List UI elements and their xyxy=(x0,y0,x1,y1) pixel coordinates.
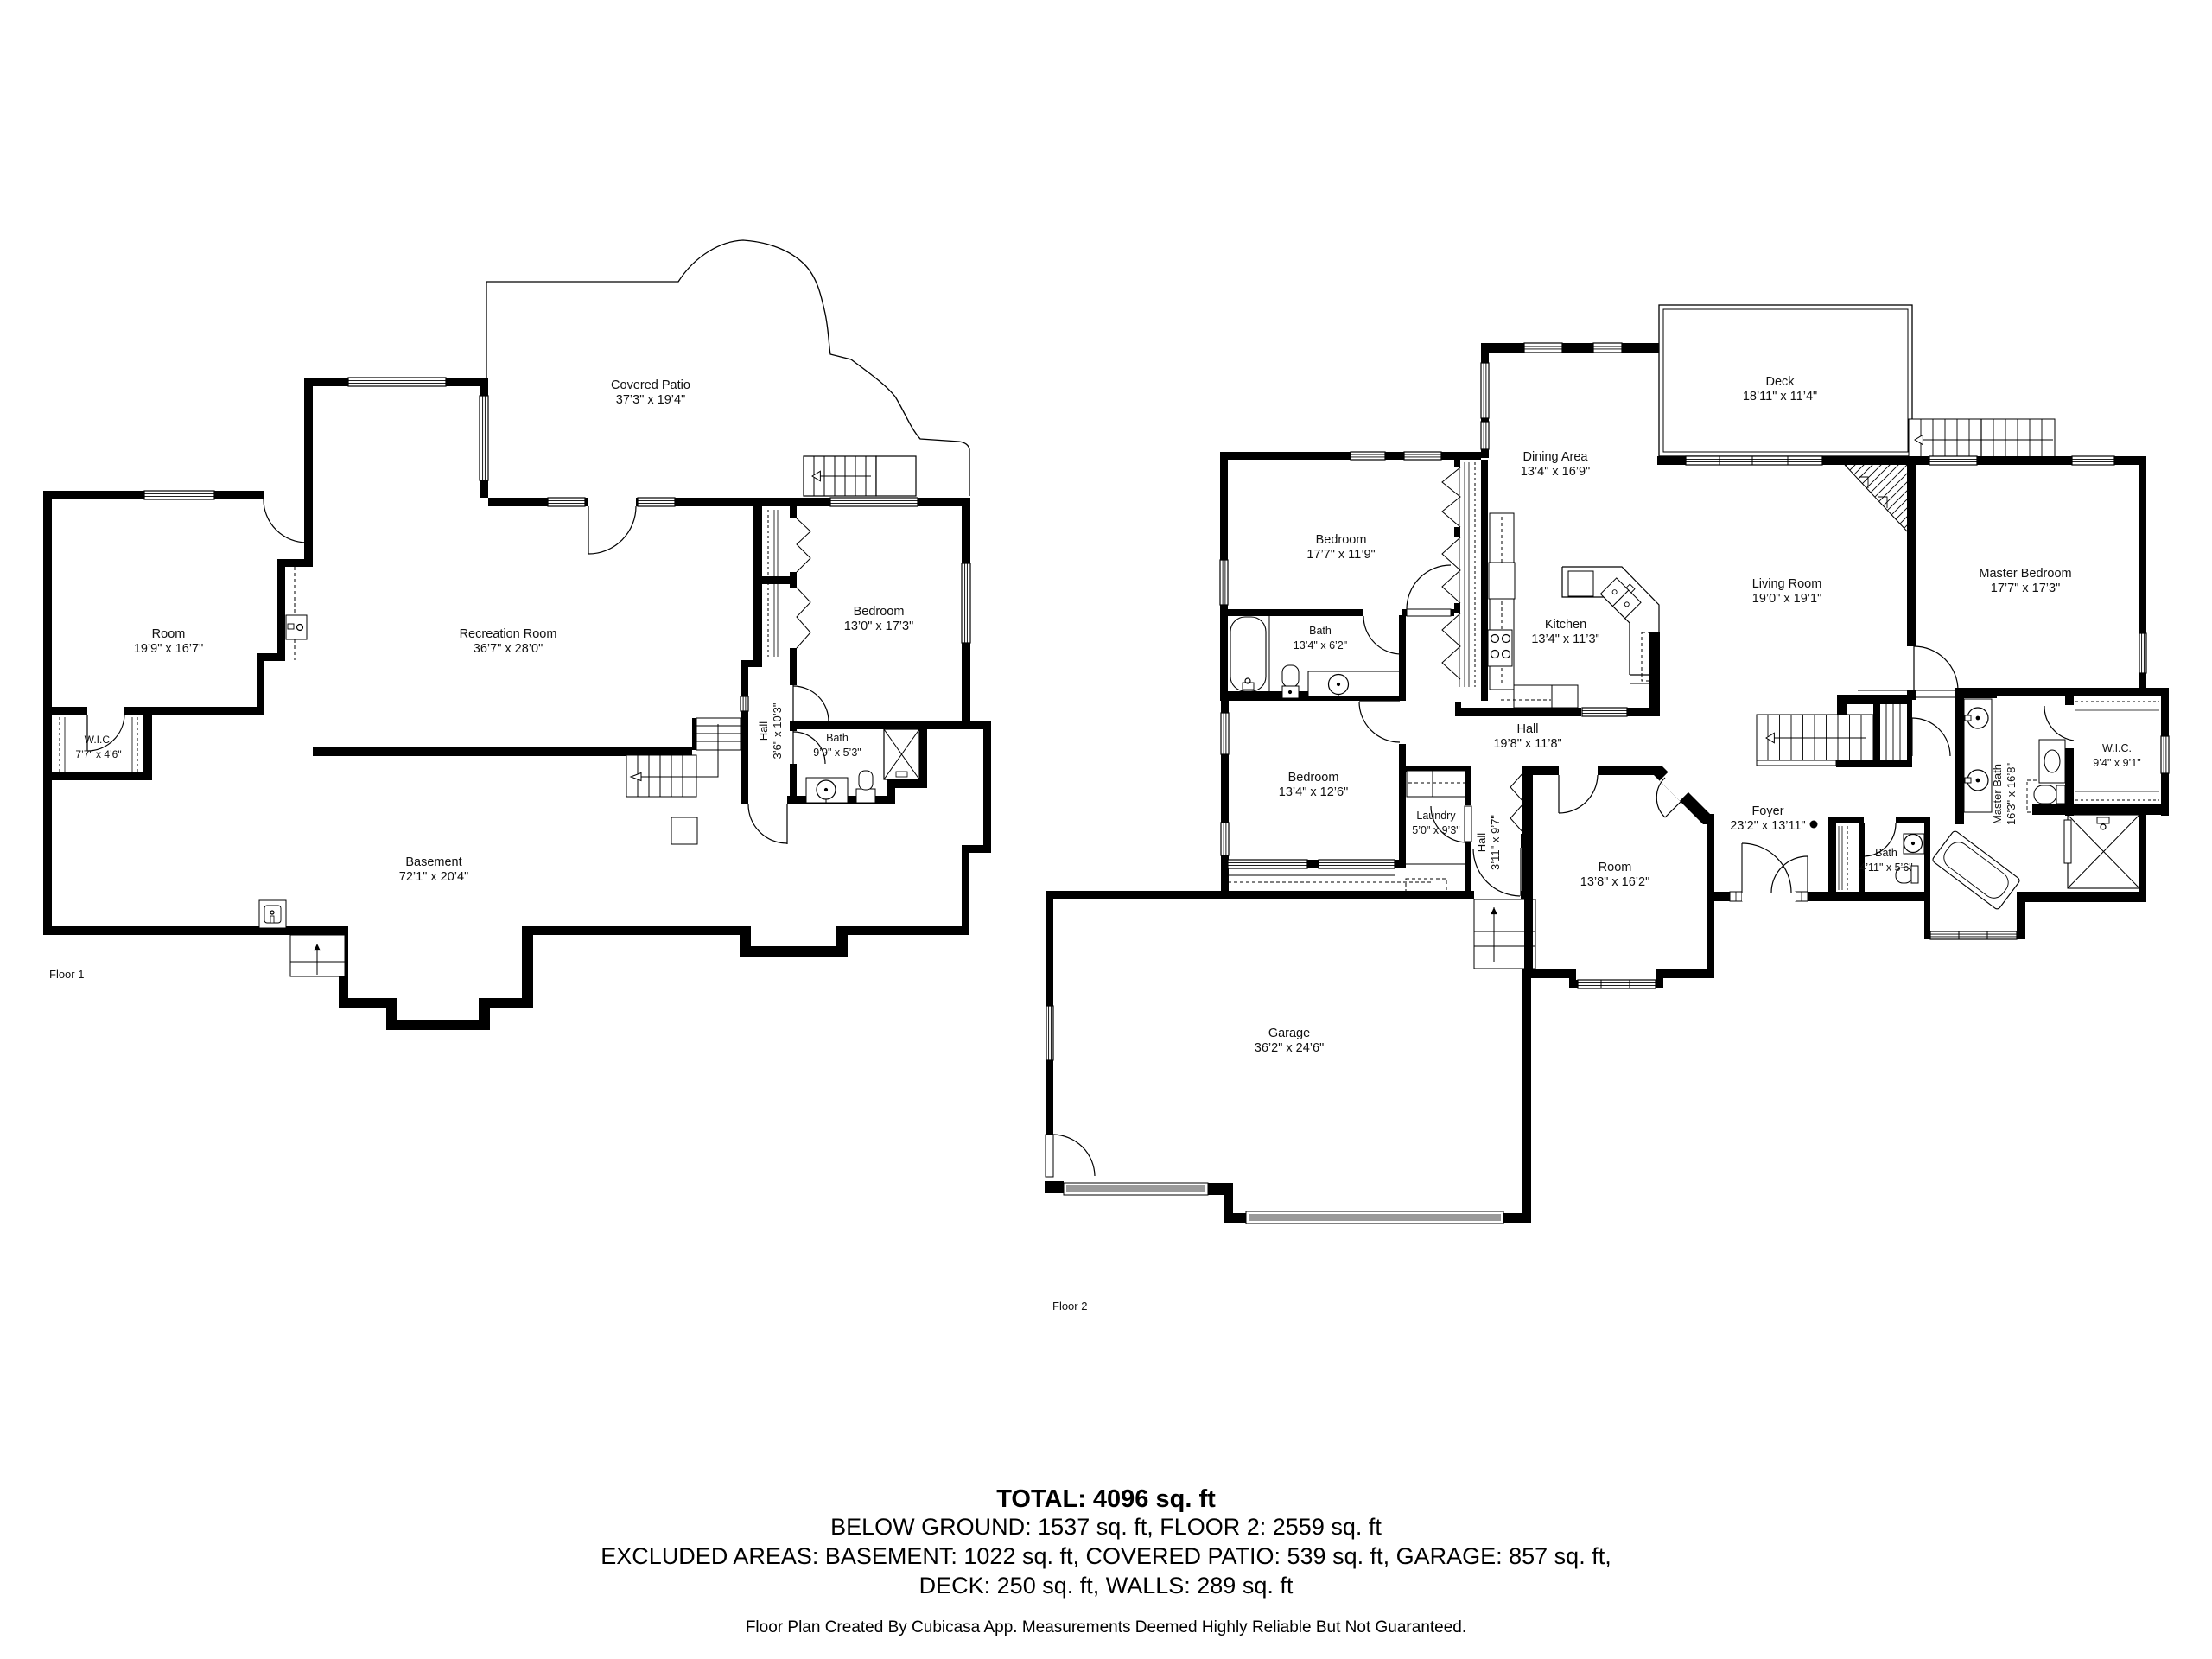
svg-text:Bath: Bath xyxy=(826,732,849,744)
svg-text:13’4" x 11’3": 13’4" x 11’3" xyxy=(1531,632,1599,646)
svg-text:Hall: Hall xyxy=(1475,833,1488,853)
svg-text:72’1" x 20’4": 72’1" x 20’4" xyxy=(399,870,468,884)
svg-text:Bath: Bath xyxy=(1309,625,1332,637)
svg-text:Laundry: Laundry xyxy=(1416,810,1456,822)
svg-text:Bedroom: Bedroom xyxy=(854,605,905,619)
svg-text:13’4" x 12’6": 13’4" x 12’6" xyxy=(1279,785,1348,799)
svg-text:36’7" x 28’0": 36’7" x 28’0" xyxy=(474,642,543,656)
svg-text:Basement: Basement xyxy=(405,855,461,869)
svg-text:EXCLUDED AREAS: BASEMENT: 1022: EXCLUDED AREAS: BASEMENT: 1022 sq. ft, C… xyxy=(601,1543,1611,1569)
svg-text:36’2" x 24’6": 36’2" x 24’6" xyxy=(1255,1041,1324,1055)
svg-text:18’11" x 11’4": 18’11" x 11’4" xyxy=(1743,390,1817,404)
svg-text:Bedroom: Bedroom xyxy=(1316,533,1367,547)
svg-text:Living Room: Living Room xyxy=(1752,577,1822,591)
svg-text:5’0" x 9’3": 5’0" x 9’3" xyxy=(1412,824,1459,836)
svg-text:16’3" x 16’8": 16’3" x 16’8" xyxy=(2005,763,2018,825)
svg-text:23’2" x 13’11": 23’2" x 13’11" xyxy=(1730,819,1805,833)
svg-text:13’0" x 17’3": 13’0" x 17’3" xyxy=(844,620,913,633)
svg-text:9’4" x 9’1": 9’4" x 9’1" xyxy=(2093,757,2140,769)
svg-text:Room: Room xyxy=(152,627,186,641)
svg-text:Floor 1: Floor 1 xyxy=(49,968,84,981)
svg-text:13’4" x 6’2": 13’4" x 6’2" xyxy=(1294,639,1347,652)
svg-text:Room: Room xyxy=(1599,861,1632,874)
svg-text:Bedroom: Bedroom xyxy=(1288,771,1339,785)
svg-text:Master Bedroom: Master Bedroom xyxy=(1979,567,2071,581)
svg-text:17’7" x 11’9": 17’7" x 11’9" xyxy=(1306,548,1375,562)
svg-text:Covered Patio: Covered Patio xyxy=(611,378,690,392)
svg-text:Hall: Hall xyxy=(1517,722,1539,736)
svg-text:7’7" x 4’6": 7’7" x 4’6" xyxy=(75,748,121,760)
svg-text:19’0" x 19’1": 19’0" x 19’1" xyxy=(1752,592,1821,606)
svg-text:13’4" x 16’9": 13’4" x 16’9" xyxy=(1521,465,1590,479)
svg-text:Floor Plan Created By Cubicasa: Floor Plan Created By Cubicasa App. Meas… xyxy=(746,1618,1466,1637)
svg-text:Deck: Deck xyxy=(1765,375,1795,389)
svg-text:W.I.C.: W.I.C. xyxy=(85,734,113,746)
svg-text:Dining Area: Dining Area xyxy=(1523,450,1589,464)
svg-text:19’8" x 11’8": 19’8" x 11’8" xyxy=(1493,737,1561,751)
svg-text:3’6" x 10’3": 3’6" x 10’3" xyxy=(771,702,784,759)
svg-text:19’9" x 16’7": 19’9" x 16’7" xyxy=(134,642,203,656)
svg-text:Bath: Bath xyxy=(1875,847,1897,859)
svg-text:Master Bath: Master Bath xyxy=(1991,764,2004,824)
svg-text:Recreation Room: Recreation Room xyxy=(460,627,557,641)
svg-text:Foyer: Foyer xyxy=(1751,804,1783,818)
svg-text:W.I.C.: W.I.C. xyxy=(2102,742,2132,754)
svg-text:Kitchen: Kitchen xyxy=(1545,618,1586,632)
svg-text:Hall: Hall xyxy=(757,721,770,741)
svg-text:37’3" x 19’4": 37’3" x 19’4" xyxy=(616,393,685,407)
svg-text:Floor 2: Floor 2 xyxy=(1052,1300,1087,1313)
svg-text:3’11" x 9’7": 3’11" x 9’7" xyxy=(1489,815,1502,870)
svg-text:TOTAL: 4096 sq. ft: TOTAL: 4096 sq. ft xyxy=(996,1485,1216,1513)
svg-text:9’9" x 5’3": 9’9" x 5’3" xyxy=(813,747,861,759)
svg-text:Garage: Garage xyxy=(1268,1027,1310,1040)
svg-text:4’11" x 5’6": 4’11" x 5’6" xyxy=(1859,861,1912,874)
svg-text:DECK: 250 sq. ft, WALLS: 289 s: DECK: 250 sq. ft, WALLS: 289 sq. ft xyxy=(919,1573,1294,1599)
svg-text:17’7" x 17’3": 17’7" x 17’3" xyxy=(1991,582,2060,595)
svg-text:BELOW GROUND: 1537 sq. ft, FLO: BELOW GROUND: 1537 sq. ft, FLOOR 2: 2559… xyxy=(830,1514,1382,1540)
svg-text:13’8" x 16’2": 13’8" x 16’2" xyxy=(1580,875,1649,889)
